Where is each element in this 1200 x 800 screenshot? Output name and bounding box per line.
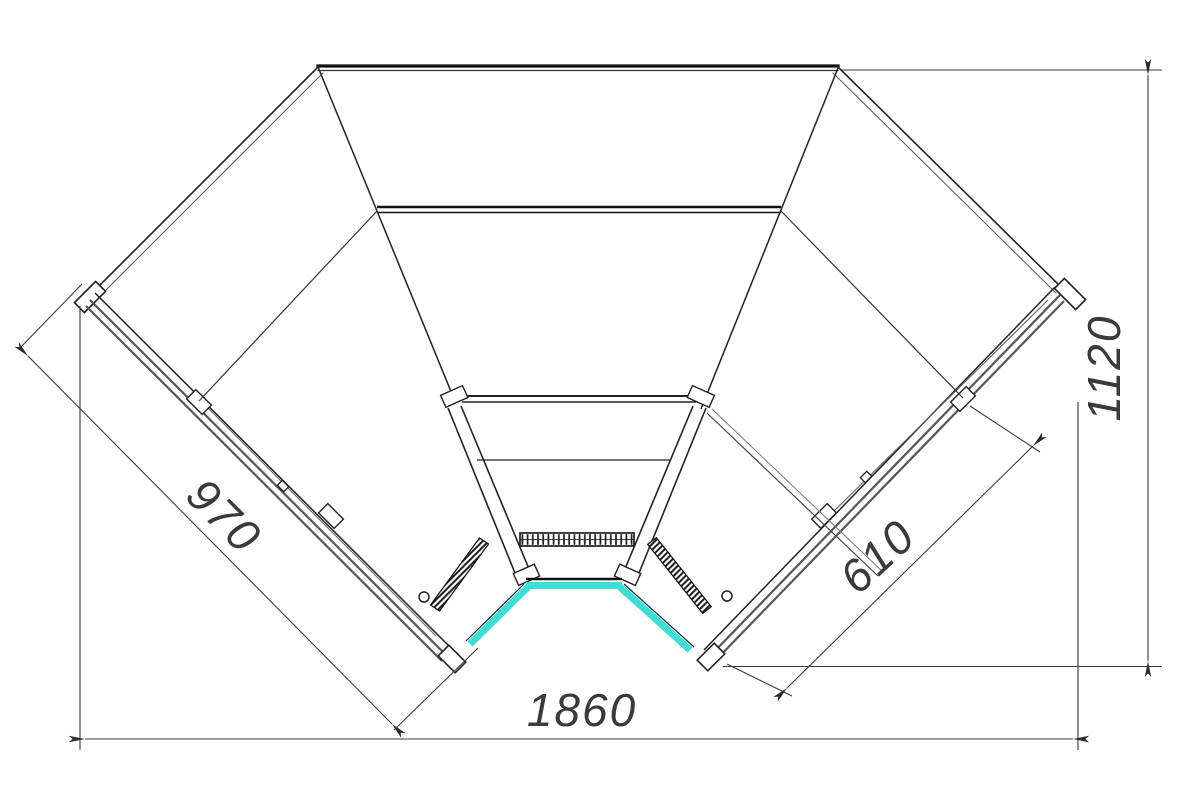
dimension-label-970: 970 <box>177 468 272 563</box>
unit-outline <box>74 66 1085 313</box>
counter-interior-lines <box>199 67 963 409</box>
left-glass-joint-cap <box>319 504 344 529</box>
extension-line <box>20 284 82 348</box>
dimension-line <box>28 356 392 724</box>
left-front-rail <box>90 300 446 655</box>
dimension-line <box>787 446 1033 688</box>
technical-drawing: 970 610 1120 1860 <box>0 0 1200 800</box>
right-end-wall <box>838 67 1062 288</box>
extension-line <box>970 406 1040 452</box>
center-grille-band <box>520 533 634 546</box>
left-end-cap <box>74 281 105 312</box>
left-vent-strip <box>431 538 489 611</box>
right-pillar-top-cap <box>687 386 714 408</box>
extension-line <box>727 664 792 696</box>
center-well <box>419 386 732 614</box>
right-front-rail <box>709 295 1060 657</box>
dimension-label-1120: 1120 <box>1078 315 1130 422</box>
right-front-end-cap <box>697 643 725 671</box>
left-wing-front <box>86 293 466 673</box>
right-wing-front <box>697 287 1064 671</box>
right-vent-strip <box>648 538 712 614</box>
left-front-end-cap <box>438 645 466 673</box>
right-rail-clip <box>860 471 871 482</box>
extension-line <box>394 648 478 730</box>
left-pillar-top-cap <box>441 386 468 408</box>
glass-front-highlight <box>466 584 694 650</box>
left-end-wall <box>98 67 318 287</box>
technical-drawing-page: 970 610 1120 1860 <box>0 0 1200 800</box>
dimension-label-610: 610 <box>829 509 925 603</box>
right-clip-circle <box>722 591 732 601</box>
dimension-label-1860: 1860 <box>527 684 637 736</box>
left-pillar <box>448 406 532 578</box>
left-clip-circle <box>419 592 429 602</box>
